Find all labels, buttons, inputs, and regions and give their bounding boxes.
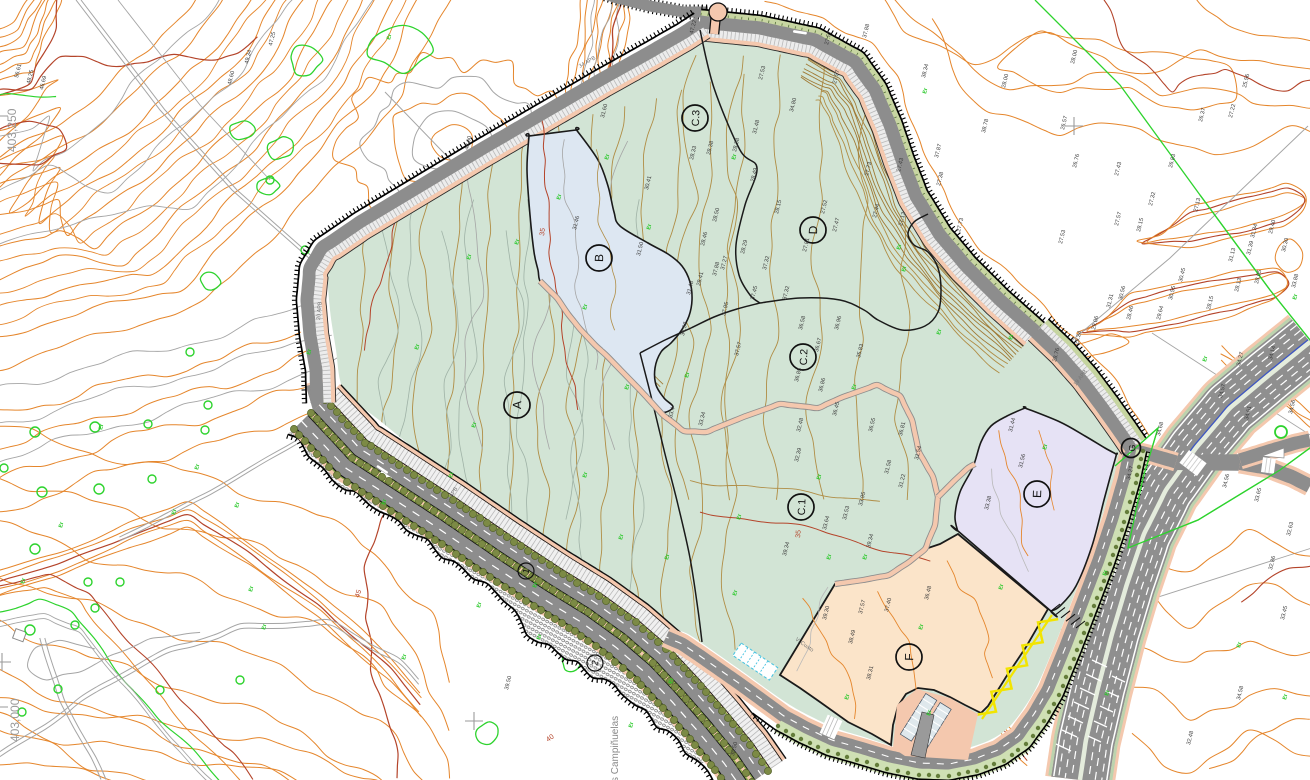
svg-text:35: 35 [795,530,803,538]
svg-text:s Campiñuelas: s Campiñuelas [610,716,621,780]
svg-text:B: B [592,254,606,262]
svg-text:C.2: C.2 [798,349,811,366]
svg-text:403,250: 403,250 [5,108,19,152]
svg-text:G: G [1127,444,1137,451]
svg-text:E: E [1030,490,1044,498]
svg-text:A: A [510,401,524,409]
svg-text:D: D [806,225,820,234]
svg-text:F: F [902,653,916,661]
svg-text:C.3: C.3 [690,110,703,127]
svg-text:403,000: 403,000 [8,698,22,742]
svg-text:35: 35 [539,227,547,236]
svg-text:C.1: C.1 [796,499,809,516]
